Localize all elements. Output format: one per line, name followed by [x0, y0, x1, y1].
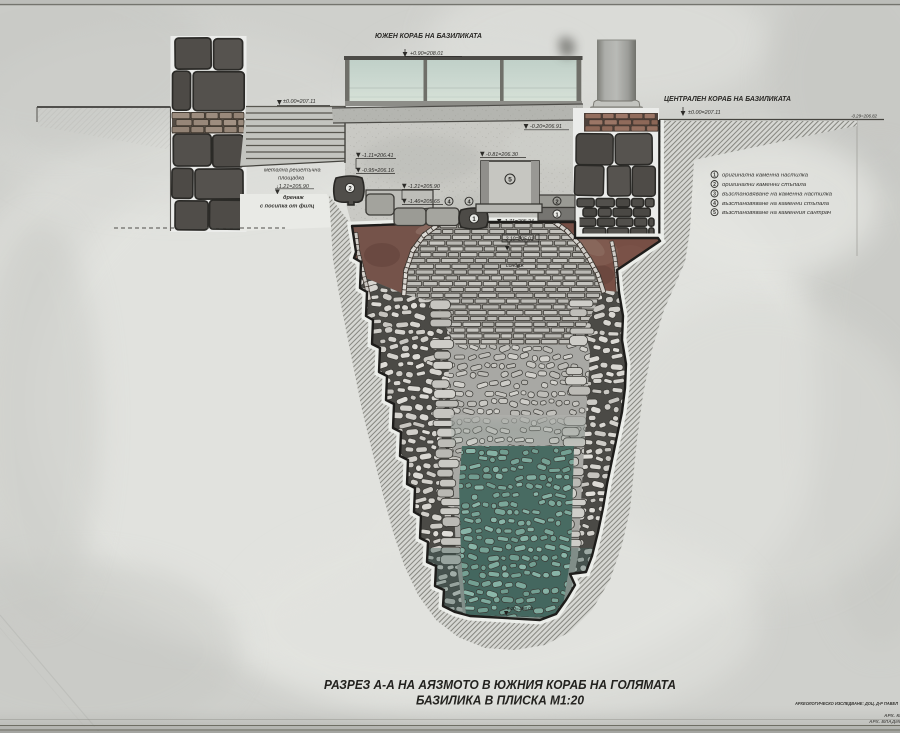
svg-text:-1.71=205.24: -1.71=205.24	[503, 219, 534, 225]
svg-text:-1.46=205.65: -1.46=205.65	[408, 199, 441, 205]
svg-text:2: 2	[713, 182, 716, 188]
svg-text:ЦЕНТРАЛЕН КОРАБ НА БАЗИЛИКАТА: ЦЕНТРАЛЕН КОРАБ НА БАЗИЛИКАТА	[664, 94, 791, 103]
svg-text:площадка: площадка	[278, 176, 304, 182]
svg-text:5: 5	[508, 177, 512, 184]
svg-text:оригинални каменни стъпала: оригинални каменни стъпала	[722, 182, 806, 188]
svg-text:-0.95=206.16: -0.95=206.16	[362, 168, 394, 174]
svg-text:-9.20=198.01: -9.20=198.01	[505, 606, 534, 612]
svg-text:5: 5	[713, 210, 716, 216]
svg-text:1: 1	[713, 173, 716, 179]
svg-text:оригинална каменна настилка: оригинална каменна настилка	[722, 173, 808, 179]
svg-text:метална решетъчна: метална решетъчна	[264, 168, 321, 174]
svg-text:±0.00=207.11: ±0.00=207.11	[688, 110, 721, 116]
svg-text:РАЗРЕЗ А-А НА АЯЗМОТО В ЮЖНИЯ: РАЗРЕЗ А-А НА АЯЗМОТО В ЮЖНИЯ КОРАБ НА Г…	[324, 678, 676, 692]
svg-text:+0.90=208.01: +0.90=208.01	[410, 51, 443, 57]
svg-text:дренаж: дренаж	[283, 195, 304, 201]
svg-text:1: 1	[555, 212, 558, 218]
svg-text:3: 3	[713, 192, 716, 198]
svg-text:-0.20=206.91: -0.20=206.91	[530, 124, 562, 130]
svg-text:-2.10=205.01: -2.10=205.01	[504, 237, 534, 243]
svg-text:възстановяване на каменна наст: възстановяване на каменна настилка	[722, 192, 832, 198]
svg-text:сондаж: сондаж	[506, 263, 524, 269]
svg-text:-0.81=206.30: -0.81=206.30	[486, 152, 518, 158]
svg-text:±0.00=207.11: ±0.00=207.11	[283, 99, 316, 105]
svg-text:с посипка от филц: с посипка от филц	[260, 203, 315, 210]
svg-text:възстановяване на каменни стъп: възстановяване на каменни стъпала	[722, 201, 829, 207]
svg-text:-1.11=206.41: -1.11=206.41	[362, 153, 394, 159]
svg-text:възстановяване на каменния сан: възстановяване на каменния сантрач	[722, 210, 831, 216]
svg-text:2: 2	[555, 199, 558, 205]
svg-text:-0.29=206.82: -0.29=206.82	[851, 114, 878, 119]
svg-text:-1.21=205.90: -1.21=205.90	[408, 184, 440, 190]
svg-text:ЮЖЕН КОРАБ НА БАЗИЛИКАТА: ЮЖЕН КОРАБ НА БАЗИЛИКАТА	[375, 31, 482, 40]
svg-text:4: 4	[713, 201, 716, 207]
